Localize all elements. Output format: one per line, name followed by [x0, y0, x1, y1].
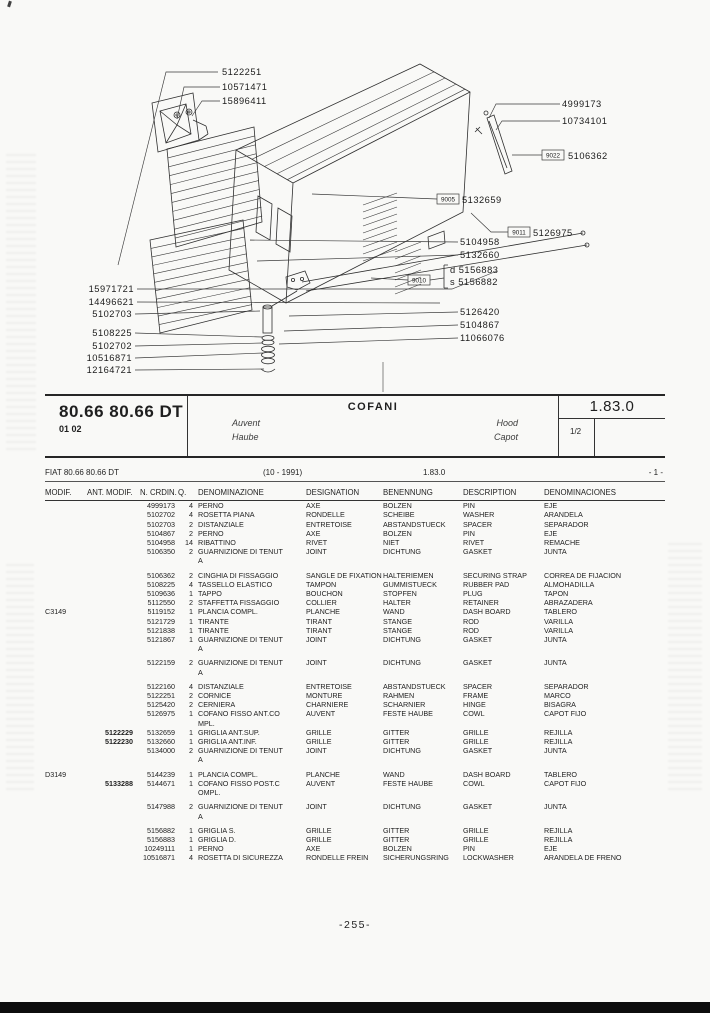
- cell-ant: [87, 520, 140, 529]
- cell-n: 5104958: [140, 538, 178, 547]
- cell-fr: GRILLE: [306, 821, 383, 835]
- cell-en: LOCKWASHER: [463, 853, 544, 862]
- cell-es: VARILLA: [544, 617, 665, 626]
- table-row: 51027032DISTANZIALEENTRETOISEABSTANDSTUE…: [45, 520, 665, 529]
- cell-n: 5122160: [140, 677, 178, 691]
- cell-modif: [45, 821, 87, 835]
- cell-q: 1: [178, 779, 198, 797]
- header-band: 80.66 80.66 DT 01 02 COFANI Auvent Haube…: [45, 394, 665, 458]
- cell-q: 1: [178, 635, 198, 653]
- cell-q: 4: [178, 677, 198, 691]
- cell-en: SPACER: [463, 677, 544, 691]
- cell-modif: [45, 589, 87, 598]
- col-q: Q.: [178, 486, 198, 501]
- cell-n: 5122159: [140, 653, 178, 676]
- cell-es: BISAGRA: [544, 700, 665, 709]
- cell-en: GASKET: [463, 635, 544, 653]
- model-code: 01 02: [59, 424, 187, 434]
- cell-n: 4999173: [140, 501, 178, 511]
- section-number: 1.83.0: [559, 398, 665, 415]
- diagram-part-number: 10734101: [562, 116, 607, 126]
- cell-ant: [87, 677, 140, 691]
- cell-es: TABLERO: [544, 607, 665, 616]
- cell-it: PLANCIA COMPL.: [198, 765, 306, 779]
- cell-ant: [87, 653, 140, 676]
- cell-ant: [87, 691, 140, 700]
- table-row: 510495814RIBATTINORIVETNIETRIVETREMACHE: [45, 538, 665, 547]
- cell-ant: [87, 835, 140, 844]
- diagram-part-number: 5132659: [462, 195, 502, 205]
- cell-es: JUNTA: [544, 797, 665, 820]
- cell-it: ROSETTA PIANA: [198, 510, 306, 519]
- cell-ant: 5122229: [87, 728, 140, 737]
- cell-de: BOLZEN: [383, 501, 463, 511]
- diagram-part-number: 11066076: [460, 333, 505, 343]
- table-row: 51048672PERNOAXEBOLZENPINEJE: [45, 529, 665, 538]
- table-row: 51096361TAPPOBOUCHONSTOPFENPLUGTAPON: [45, 589, 665, 598]
- cell-n: 5102702: [140, 510, 178, 519]
- diagram-part-number: 10516871: [87, 353, 132, 363]
- cell-q: 2: [178, 520, 198, 529]
- table-row: 51340002GUARNIZIONE DI TENUT AJOINTDICHT…: [45, 746, 665, 764]
- cell-de: STOPFEN: [383, 589, 463, 598]
- leader-line: [471, 213, 508, 232]
- cell-q: 2: [178, 653, 198, 676]
- cell-it: TAPPO: [198, 589, 306, 598]
- cell-de: STANGE: [383, 626, 463, 635]
- cell-modif: [45, 853, 87, 862]
- cell-it: PLANCIA COMPL.: [198, 607, 306, 616]
- table-row: 512223051326601GRIGLIA ANT.INF.GRILLEGIT…: [45, 737, 665, 746]
- cell-es: CAPOT FIJO: [544, 709, 665, 727]
- cell-q: 1: [178, 835, 198, 844]
- table-row: 51479882GUARNIZIONE DI TENUT AJOINTDICHT…: [45, 797, 665, 820]
- cell-q: 4: [178, 853, 198, 862]
- subheader-section: 1.83.0: [423, 468, 445, 477]
- cell-modif: [45, 844, 87, 853]
- cell-es: JUNTA: [544, 653, 665, 676]
- cell-de: DICHTUNG: [383, 746, 463, 764]
- cell-de: ABSTANDSTUECK: [383, 677, 463, 691]
- cell-fr: ENTRETOISE: [306, 677, 383, 691]
- cell-de: HALTERIEMEN: [383, 566, 463, 580]
- diagram-part-number: 10571471: [222, 82, 267, 92]
- ref-box-label: 9022: [546, 153, 561, 160]
- cell-en: SECURING STRAP: [463, 566, 544, 580]
- cell-es: JUNTA: [544, 547, 665, 565]
- leader-line: [135, 333, 262, 337]
- cell-it: GRIGLIA ANT.SUP.: [198, 728, 306, 737]
- cell-ant: 5122230: [87, 737, 140, 746]
- cell-it: TIRANTE: [198, 626, 306, 635]
- diagram-part-number: 4999173: [562, 99, 602, 109]
- cell-de: BOLZEN: [383, 844, 463, 853]
- scan-bottom-bar: [0, 1002, 710, 1013]
- cell-ant: [87, 844, 140, 853]
- table-row: 512222951326591GRIGLIA ANT.SUP.GRILLEGIT…: [45, 728, 665, 737]
- cell-de: DICHTUNG: [383, 547, 463, 565]
- cell-ant: [87, 510, 140, 519]
- cell-en: COWL: [463, 779, 544, 797]
- cell-n: 5102703: [140, 520, 178, 529]
- cell-fr: JOINT: [306, 653, 383, 676]
- cell-de: HALTER: [383, 598, 463, 607]
- cell-q: 1: [178, 589, 198, 598]
- cell-modif: [45, 691, 87, 700]
- subheader-index: - 1 -: [649, 468, 663, 477]
- diagram-part-number: 15896411: [222, 96, 267, 106]
- leader-line: [192, 101, 220, 116]
- divider: [559, 418, 665, 419]
- ref-box-label: 9005: [441, 197, 456, 204]
- table-row: 51082254TASSELLO ELASTICOTAMPONGUMMISTUE…: [45, 580, 665, 589]
- cell-it: DISTANZIALE: [198, 677, 306, 691]
- catalog-page: 5122251105714711589641149991731073410190…: [0, 0, 710, 1013]
- cell-fr: RONDELLE: [306, 510, 383, 519]
- cell-es: MARCO: [544, 691, 665, 700]
- cell-ant: [87, 635, 140, 653]
- cell-es: REJILLA: [544, 728, 665, 737]
- cell-modif: [45, 677, 87, 691]
- cell-ant: [87, 580, 140, 589]
- table-row: 51269751COFANO FISSO ANT.CO MPL.AUVENTFE…: [45, 709, 665, 727]
- cell-it: STAFFETTA FISSAGGIO: [198, 598, 306, 607]
- sheet-number: 1/2: [570, 427, 581, 436]
- cell-ant: [87, 501, 140, 511]
- cell-fr: TIRANT: [306, 626, 383, 635]
- cell-modif: [45, 835, 87, 844]
- cell-de: STANGE: [383, 617, 463, 626]
- cell-en: PIN: [463, 501, 544, 511]
- cell-n: 5144671: [140, 779, 178, 797]
- cell-q: 2: [178, 797, 198, 820]
- cell-de: NIET: [383, 538, 463, 547]
- cell-n: 5156883: [140, 835, 178, 844]
- table-header-row: MODIF. ANT. MODIF. N. CRDIN. Q. DENOMINA…: [45, 486, 665, 501]
- cell-ant: [87, 617, 140, 626]
- scan-artifact: [6, 560, 34, 790]
- cell-es: TABLERO: [544, 765, 665, 779]
- cell-it: GRIGLIA ANT.INF.: [198, 737, 306, 746]
- cell-de: BOLZEN: [383, 529, 463, 538]
- cell-fr: TIRANT: [306, 617, 383, 626]
- cell-en: RETAINER: [463, 598, 544, 607]
- cell-de: RAHMEN: [383, 691, 463, 700]
- cell-n: 10516871: [140, 853, 178, 862]
- table-row: C314951191521PLANCIA COMPL.PLANCHEWANDDA…: [45, 607, 665, 616]
- cell-it: GUARNIZIONE DI TENUT A: [198, 547, 306, 565]
- table-row: 51218381TIRANTETIRANTSTANGERODVARILLA: [45, 626, 665, 635]
- cell-n: 5156882: [140, 821, 178, 835]
- cell-q: 1: [178, 709, 198, 727]
- cell-q: 1: [178, 844, 198, 853]
- cell-es: ARANDELA DE FRENO: [544, 853, 665, 862]
- cell-q: 2: [178, 700, 198, 709]
- cell-ant: [87, 765, 140, 779]
- cell-modif: [45, 617, 87, 626]
- scan-artifact: [668, 540, 702, 790]
- cell-n: 5125420: [140, 700, 178, 709]
- cell-es: REJILLA: [544, 737, 665, 746]
- cell-n: 5112550: [140, 598, 178, 607]
- cell-n: 5104867: [140, 529, 178, 538]
- cell-q: 1: [178, 728, 198, 737]
- cell-it: PERNO: [198, 844, 306, 853]
- cell-it: DISTANZIALE: [198, 520, 306, 529]
- leader-line: [177, 87, 220, 119]
- subheader-model: FIAT 80.66 80.66 DT: [45, 468, 119, 477]
- cell-modif: [45, 538, 87, 547]
- cell-en: FRAME: [463, 691, 544, 700]
- cell-fr: PLANCHE: [306, 607, 383, 616]
- cell-modif: [45, 626, 87, 635]
- col-modif: MODIF.: [45, 486, 87, 501]
- col-ant-modif: ANT. MODIF.: [87, 486, 140, 501]
- cell-ant: [87, 853, 140, 862]
- cell-q: 4: [178, 580, 198, 589]
- leader-line: [135, 343, 263, 346]
- table-row: 51218671GUARNIZIONE DI TENUT AJOINTDICHT…: [45, 635, 665, 653]
- leader-line: [279, 338, 458, 344]
- cell-n: 5121867: [140, 635, 178, 653]
- table-row: 51221592GUARNIZIONE DI TENUT AJOINTDICHT…: [45, 653, 665, 676]
- diagram-part-number: 5104867: [460, 320, 500, 330]
- cell-de: SICHERUNGSRING: [383, 853, 463, 862]
- cell-n: 5109636: [140, 589, 178, 598]
- cell-es: CAPOT FIJO: [544, 779, 665, 797]
- table-row: 51221604DISTANZIALEENTRETOISEABSTANDSTUE…: [45, 677, 665, 691]
- cell-ant: [87, 746, 140, 764]
- cell-fr: ENTRETOISE: [306, 520, 383, 529]
- cell-q: 2: [178, 547, 198, 565]
- cell-fr: SANGLE DE FIXATION: [306, 566, 383, 580]
- cell-de: SCHEIBE: [383, 510, 463, 519]
- cell-fr: COLLIER: [306, 598, 383, 607]
- leader-line: [289, 312, 458, 316]
- cell-ant: [87, 797, 140, 820]
- cell-fr: AUVENT: [306, 709, 383, 727]
- table-row: 105168714ROSETTA DI SICUREZZARONDELLE FR…: [45, 853, 665, 862]
- cell-es: SEPARADOR: [544, 520, 665, 529]
- cell-modif: [45, 501, 87, 511]
- cell-n: 5121729: [140, 617, 178, 626]
- cell-it: GUARNIZIONE DI TENUT A: [198, 797, 306, 820]
- cell-modif: [45, 728, 87, 737]
- col-denominazione: DENOMINAZIONE: [198, 486, 306, 501]
- cell-modif: [45, 797, 87, 820]
- cell-it: TASSELLO ELASTICO: [198, 580, 306, 589]
- leader-line: [312, 194, 437, 199]
- model-number: 80.66 80.66 DT: [59, 402, 187, 422]
- cell-fr: AUVENT: [306, 779, 383, 797]
- cell-fr: MONTURE: [306, 691, 383, 700]
- cell-en: RUBBER PAD: [463, 580, 544, 589]
- cell-ant: [87, 538, 140, 547]
- cell-q: 2: [178, 598, 198, 607]
- cell-it: GRIGLIA D.: [198, 835, 306, 844]
- cell-es: REMACHE: [544, 538, 665, 547]
- cell-fr: AXE: [306, 529, 383, 538]
- cell-n: 5126975: [140, 709, 178, 727]
- cell-q: 2: [178, 529, 198, 538]
- cell-modif: [45, 598, 87, 607]
- cell-ant: [87, 821, 140, 835]
- cell-en: SPACER: [463, 520, 544, 529]
- cell-en: PIN: [463, 529, 544, 538]
- title-es: Capot: [494, 432, 518, 442]
- cell-en: DASH BOARD: [463, 607, 544, 616]
- table-row: 51568831GRIGLIA D.GRILLEGITTERGRILLEREJI…: [45, 835, 665, 844]
- diagram-part-number: 5102703: [92, 309, 132, 319]
- cell-de: ABSTANDSTUECK: [383, 520, 463, 529]
- cell-n: 5106350: [140, 547, 178, 565]
- cell-es: TAPON: [544, 589, 665, 598]
- ref-box-label: 9010: [412, 278, 427, 285]
- cell-ant: 5133288: [87, 779, 140, 797]
- cell-q: 4: [178, 501, 198, 511]
- cell-en: GASKET: [463, 653, 544, 676]
- diagram-part-number: 5104958: [460, 237, 500, 247]
- cell-modif: [45, 510, 87, 519]
- model-block: 80.66 80.66 DT 01 02: [45, 396, 188, 456]
- cell-q: 1: [178, 617, 198, 626]
- cell-it: COFANO FISSO ANT.CO MPL.: [198, 709, 306, 727]
- table-row: 51125502STAFFETTA FISSAGGIOCOLLIERHALTER…: [45, 598, 665, 607]
- cell-es: SEPARADOR: [544, 677, 665, 691]
- cell-en: GRILLE: [463, 728, 544, 737]
- col-denominaciones: DENOMINACIONES: [544, 486, 665, 501]
- cell-es: REJILLA: [544, 821, 665, 835]
- cell-en: DASH BOARD: [463, 765, 544, 779]
- table-row: 49991734PERNOAXEBOLZENPINEJE: [45, 501, 665, 511]
- cell-en: COWL: [463, 709, 544, 727]
- diagram-part-number: 14496621: [89, 297, 134, 307]
- col-designation: DESIGNATION: [306, 486, 383, 501]
- cell-it: GRIGLIA S.: [198, 821, 306, 835]
- parts-table: MODIF. ANT. MODIF. N. CRDIN. Q. DENOMINA…: [45, 486, 665, 863]
- cell-ant: [87, 598, 140, 607]
- cell-es: VARILLA: [544, 626, 665, 635]
- col-benennung: BENENNUNG: [383, 486, 463, 501]
- cell-it: PERNO: [198, 529, 306, 538]
- cell-modif: [45, 700, 87, 709]
- diagram-part-number: 5126975: [533, 228, 573, 238]
- cell-it: GUARNIZIONE DI TENUT A: [198, 746, 306, 764]
- diagram-part-number: s 5156882: [450, 277, 498, 287]
- cell-modif: [45, 653, 87, 676]
- cell-q: 2: [178, 566, 198, 580]
- cell-fr: AXE: [306, 844, 383, 853]
- cell-q: 1: [178, 737, 198, 746]
- cell-n: 5132659: [140, 728, 178, 737]
- cell-fr: PLANCHE: [306, 765, 383, 779]
- cell-n: 5119152: [140, 607, 178, 616]
- title-block: COFANI Auvent Haube Hood Capot: [188, 396, 558, 456]
- cell-q: 2: [178, 746, 198, 764]
- title-fr: Auvent: [232, 418, 260, 428]
- cell-fr: RIVET: [306, 538, 383, 547]
- col-n-ordin: N. CRDIN.: [140, 486, 178, 501]
- cell-n: 5121838: [140, 626, 178, 635]
- exploded-parts-diagram: 5122251105714711589641149991731073410190…: [0, 0, 710, 392]
- diagram-part-number: 5122251: [222, 67, 262, 77]
- cell-modif: C3149: [45, 607, 87, 616]
- cell-de: DICHTUNG: [383, 635, 463, 653]
- cell-en: GASKET: [463, 746, 544, 764]
- cell-q: 1: [178, 607, 198, 616]
- cell-ant: [87, 626, 140, 635]
- cell-n: 5106362: [140, 566, 178, 580]
- cell-fr: JOINT: [306, 746, 383, 764]
- table-row: 51568821GRIGLIA S.GRILLEGITTERGRILLEREJI…: [45, 821, 665, 835]
- cell-n: 5147988: [140, 797, 178, 820]
- cell-en: GRILLE: [463, 821, 544, 835]
- table-row: 51254202CERNIERACHARNIERESCHARNIERHINGEB…: [45, 700, 665, 709]
- leader-line: [250, 240, 458, 242]
- cell-q: 1: [178, 765, 198, 779]
- cell-q: 14: [178, 538, 198, 547]
- cell-en: ROD: [463, 626, 544, 635]
- cell-modif: [45, 566, 87, 580]
- cell-it: GUARNIZIONE DI TENUT A: [198, 635, 306, 653]
- cell-modif: D3149: [45, 765, 87, 779]
- cell-modif: [45, 737, 87, 746]
- cell-es: ABRAZADERA: [544, 598, 665, 607]
- title-en: Hood: [496, 418, 518, 428]
- cell-it: TIRANTE: [198, 617, 306, 626]
- diagram-part-number: 5126420: [460, 307, 500, 317]
- cell-de: DICHTUNG: [383, 797, 463, 820]
- cell-fr: GRILLE: [306, 835, 383, 844]
- subheader-period: (10 - 1991): [263, 468, 302, 477]
- cell-es: REJILLA: [544, 835, 665, 844]
- leader-line: [489, 104, 560, 118]
- cell-n: 5132660: [140, 737, 178, 746]
- cell-en: HINGE: [463, 700, 544, 709]
- cell-de: GITTER: [383, 821, 463, 835]
- table-row: 51063502GUARNIZIONE DI TENUT AJOINTDICHT…: [45, 547, 665, 565]
- leader-line: [496, 121, 560, 130]
- cell-fr: BOUCHON: [306, 589, 383, 598]
- cell-es: ARANDELA: [544, 510, 665, 519]
- cell-ant: [87, 607, 140, 616]
- cell-en: RIVET: [463, 538, 544, 547]
- cell-de: WAND: [383, 765, 463, 779]
- table-row: D314951442391PLANCIA COMPL.PLANCHEWANDDA…: [45, 765, 665, 779]
- cell-de: GITTER: [383, 737, 463, 746]
- cell-ant: [87, 700, 140, 709]
- cell-it: PERNO: [198, 501, 306, 511]
- cell-ant: [87, 547, 140, 565]
- cell-n: 5122251: [140, 691, 178, 700]
- cell-n: 5134000: [140, 746, 178, 764]
- cell-it: GUARNIZIONE DI TENUT A: [198, 653, 306, 676]
- cell-es: JUNTA: [544, 635, 665, 653]
- cell-q: 1: [178, 821, 198, 835]
- cell-fr: GRILLE: [306, 737, 383, 746]
- table-row: 102491111PERNOAXEBOLZENPINEJE: [45, 844, 665, 853]
- cell-it: RIBATTINO: [198, 538, 306, 547]
- cell-q: 2: [178, 691, 198, 700]
- leader-line: [135, 369, 264, 370]
- cell-es: JUNTA: [544, 746, 665, 764]
- cell-es: ALMOHADILLA: [544, 580, 665, 589]
- section-block: 1.83.0 1/2: [558, 396, 665, 456]
- cell-es: CORREA DE FIJACION: [544, 566, 665, 580]
- cell-ant: [87, 589, 140, 598]
- page-number: -255-: [0, 919, 710, 931]
- cell-n: 5144239: [140, 765, 178, 779]
